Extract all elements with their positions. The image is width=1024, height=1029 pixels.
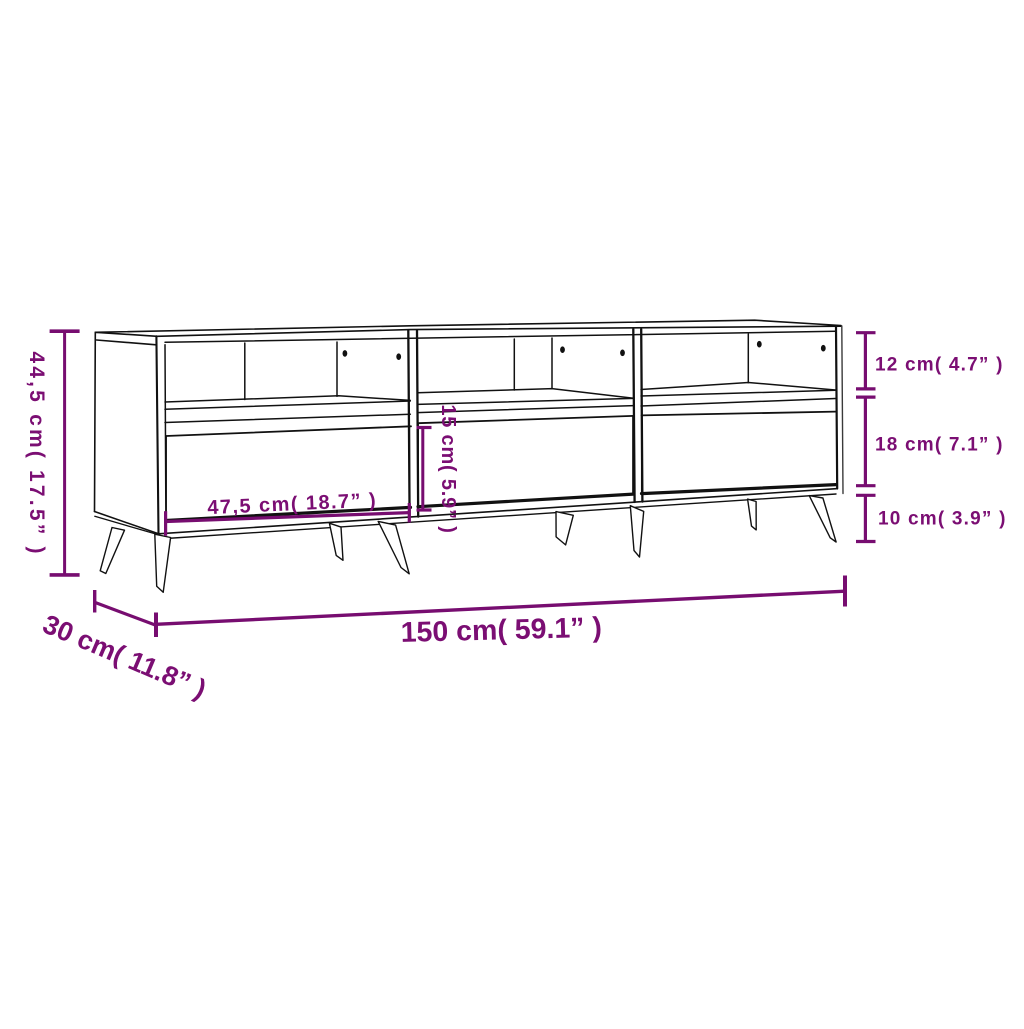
svg-text:44,5 cm( 17.5” ): 44,5 cm( 17.5” ) [25, 351, 48, 556]
svg-text:150 cm( 59.1” ): 150 cm( 59.1” ) [400, 612, 602, 649]
svg-text:10 cm( 3.9” ): 10 cm( 3.9” ) [878, 508, 1007, 529]
svg-text:15 cm( 5.9” ): 15 cm( 5.9” ) [437, 404, 459, 533]
svg-text:12 cm( 4.7” ): 12 cm( 4.7” ) [875, 354, 1004, 375]
svg-text:18 cm( 7.1” ): 18 cm( 7.1” ) [875, 434, 1004, 455]
